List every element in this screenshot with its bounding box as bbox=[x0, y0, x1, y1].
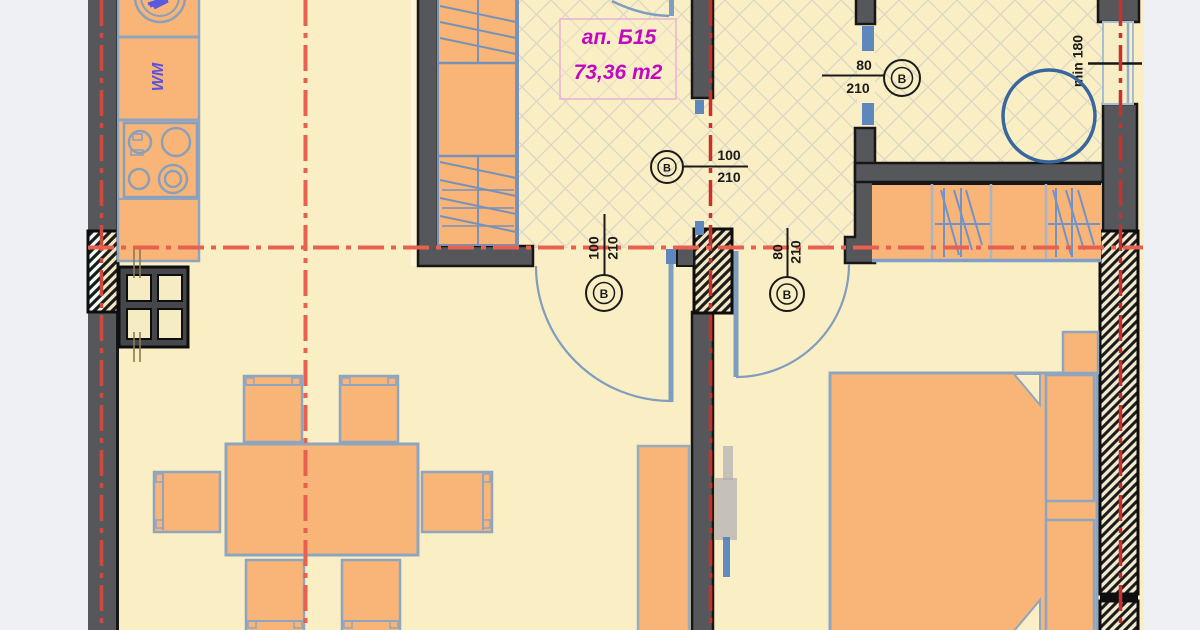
svg-text:В: В bbox=[600, 287, 609, 301]
svg-text:210: 210 bbox=[846, 80, 870, 96]
svg-text:В: В bbox=[663, 163, 671, 175]
svg-text:ап. Б15: ап. Б15 bbox=[582, 26, 657, 49]
svg-text:210: 210 bbox=[605, 236, 621, 260]
svg-text:80: 80 bbox=[770, 244, 786, 260]
svg-text:100: 100 bbox=[586, 236, 602, 260]
svg-text:В: В bbox=[783, 288, 792, 302]
svg-text:210: 210 bbox=[717, 169, 741, 185]
svg-text:100: 100 bbox=[717, 147, 741, 163]
svg-text:210: 210 bbox=[788, 240, 804, 264]
svg-text:73,36 m2: 73,36 m2 bbox=[574, 61, 663, 84]
svg-text:В: В bbox=[898, 72, 907, 86]
svg-text:WM: WM bbox=[150, 62, 167, 91]
svg-text:80: 80 bbox=[856, 57, 872, 73]
